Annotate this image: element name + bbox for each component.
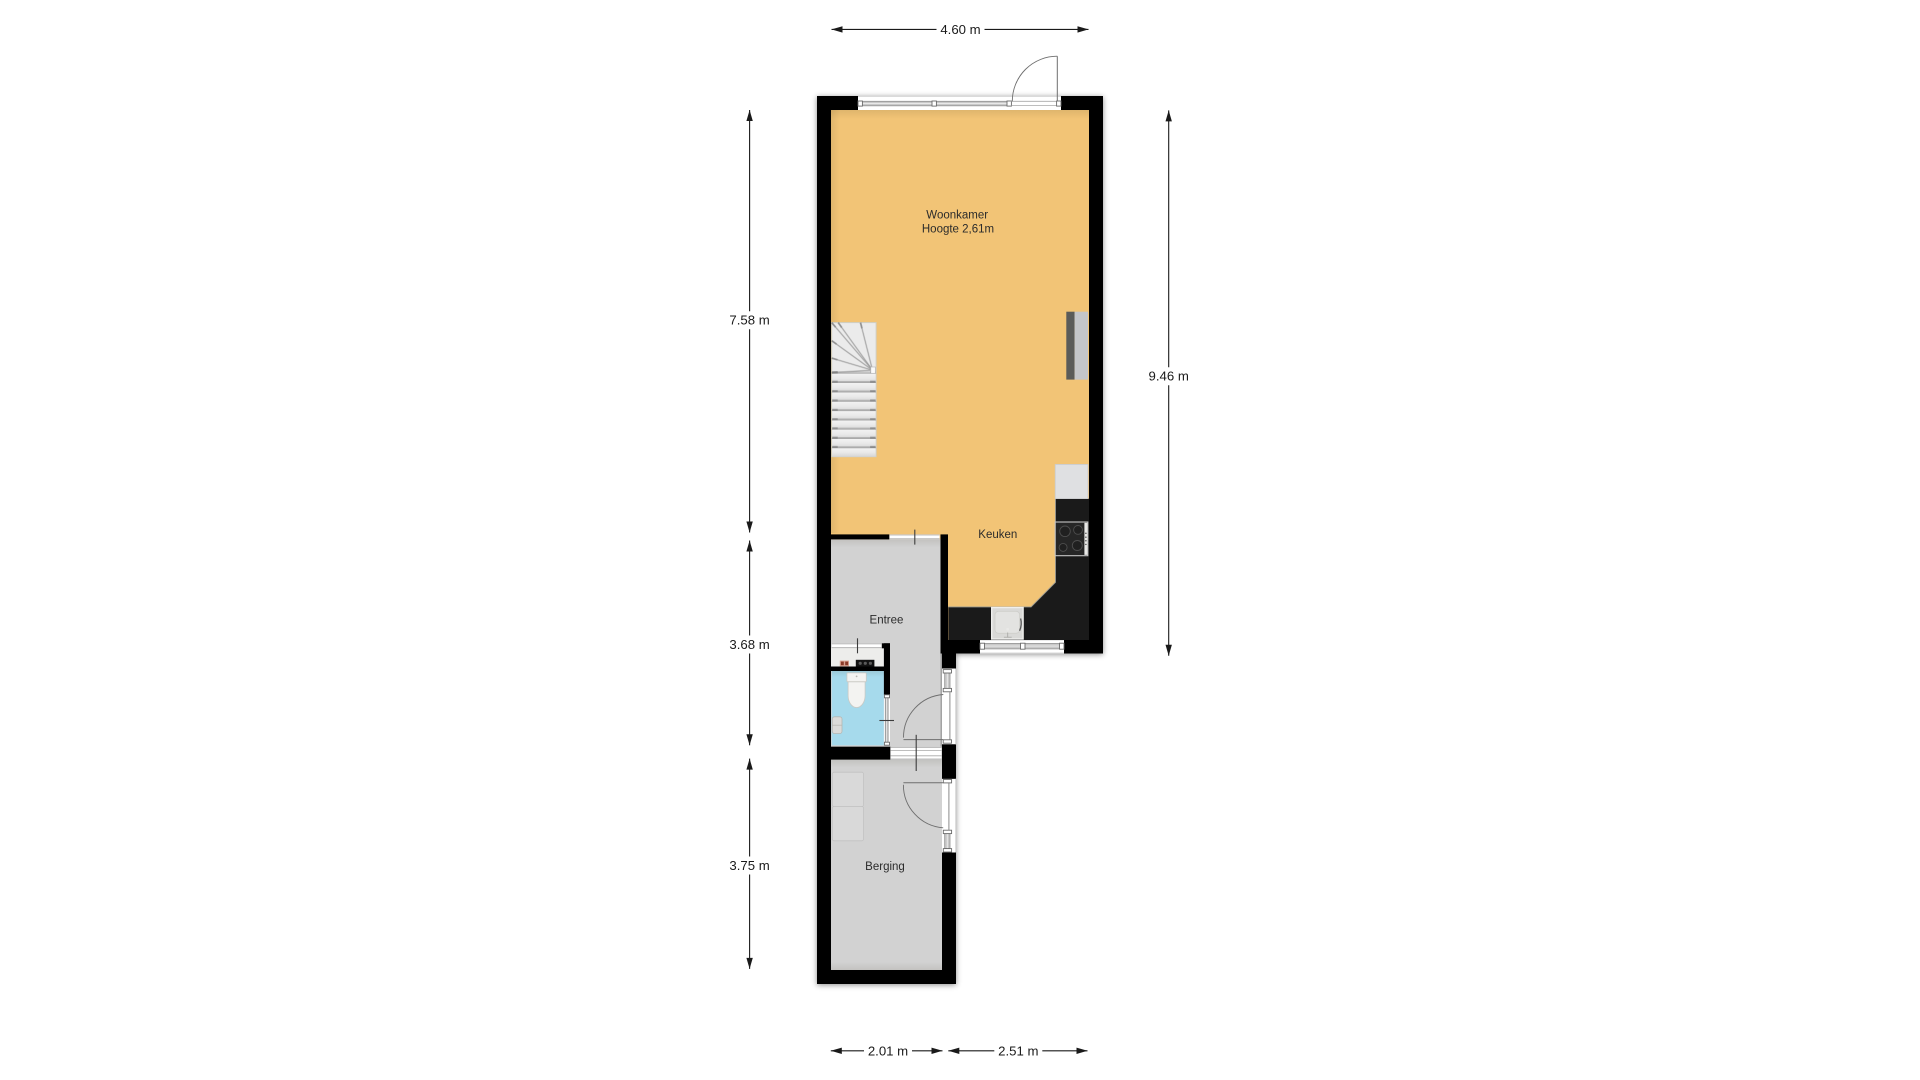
svg-text:2.51 m: 2.51 m	[998, 1043, 1038, 1058]
svg-text:9.46 m: 9.46 m	[1149, 369, 1189, 384]
svg-text:Entree: Entree	[870, 615, 904, 627]
svg-text:Woonkamer: Woonkamer	[926, 210, 988, 222]
svg-text:3.75 m: 3.75 m	[729, 858, 769, 873]
svg-text:Hoogte 2,61m: Hoogte 2,61m	[922, 224, 994, 236]
svg-text:4.60 m: 4.60 m	[940, 22, 980, 37]
svg-text:Berging: Berging	[865, 861, 905, 873]
svg-text:7.58 m: 7.58 m	[729, 313, 769, 328]
svg-text:Keuken: Keuken	[978, 529, 1017, 541]
svg-text:2.01 m: 2.01 m	[868, 1043, 908, 1058]
svg-text:3.68 m: 3.68 m	[729, 637, 769, 652]
